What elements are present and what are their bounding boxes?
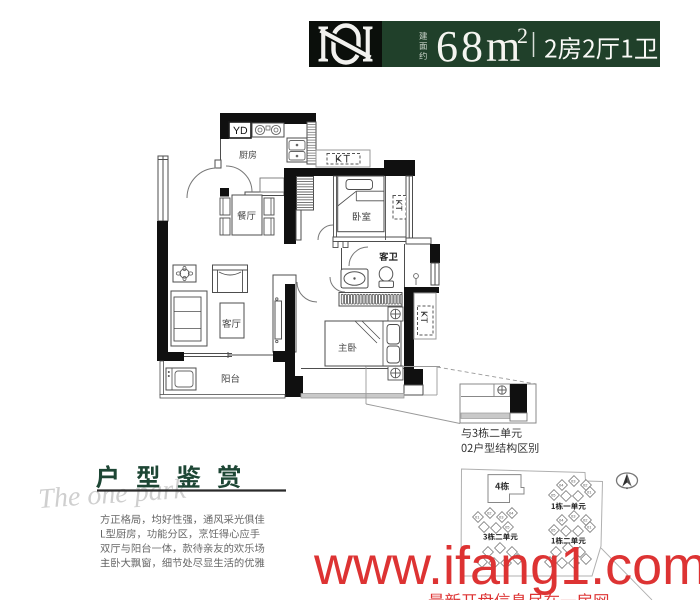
svg-text:01: 01 <box>475 515 480 520</box>
svg-text:03: 03 <box>571 514 576 519</box>
svg-text:03: 03 <box>499 515 504 520</box>
svg-text:04: 04 <box>559 518 564 523</box>
svg-text:04: 04 <box>509 511 514 516</box>
svg-text:01: 01 <box>587 525 592 530</box>
svg-text:04: 04 <box>559 483 564 488</box>
svg-text:05: 05 <box>505 525 510 530</box>
svg-text:05: 05 <box>551 528 556 533</box>
svg-text:2: 2 <box>517 23 528 48</box>
svg-text:02: 02 <box>487 511 492 516</box>
svg-text:02: 02 <box>583 518 588 523</box>
svg-text:68m: 68m <box>436 22 523 71</box>
svg-text:02: 02 <box>583 483 588 488</box>
svg-text:01: 01 <box>587 490 592 495</box>
svg-text:www.ifang1.com: www.ifang1.com <box>313 536 700 596</box>
svg-text:03: 03 <box>571 479 576 484</box>
svg-text:05: 05 <box>551 493 556 498</box>
